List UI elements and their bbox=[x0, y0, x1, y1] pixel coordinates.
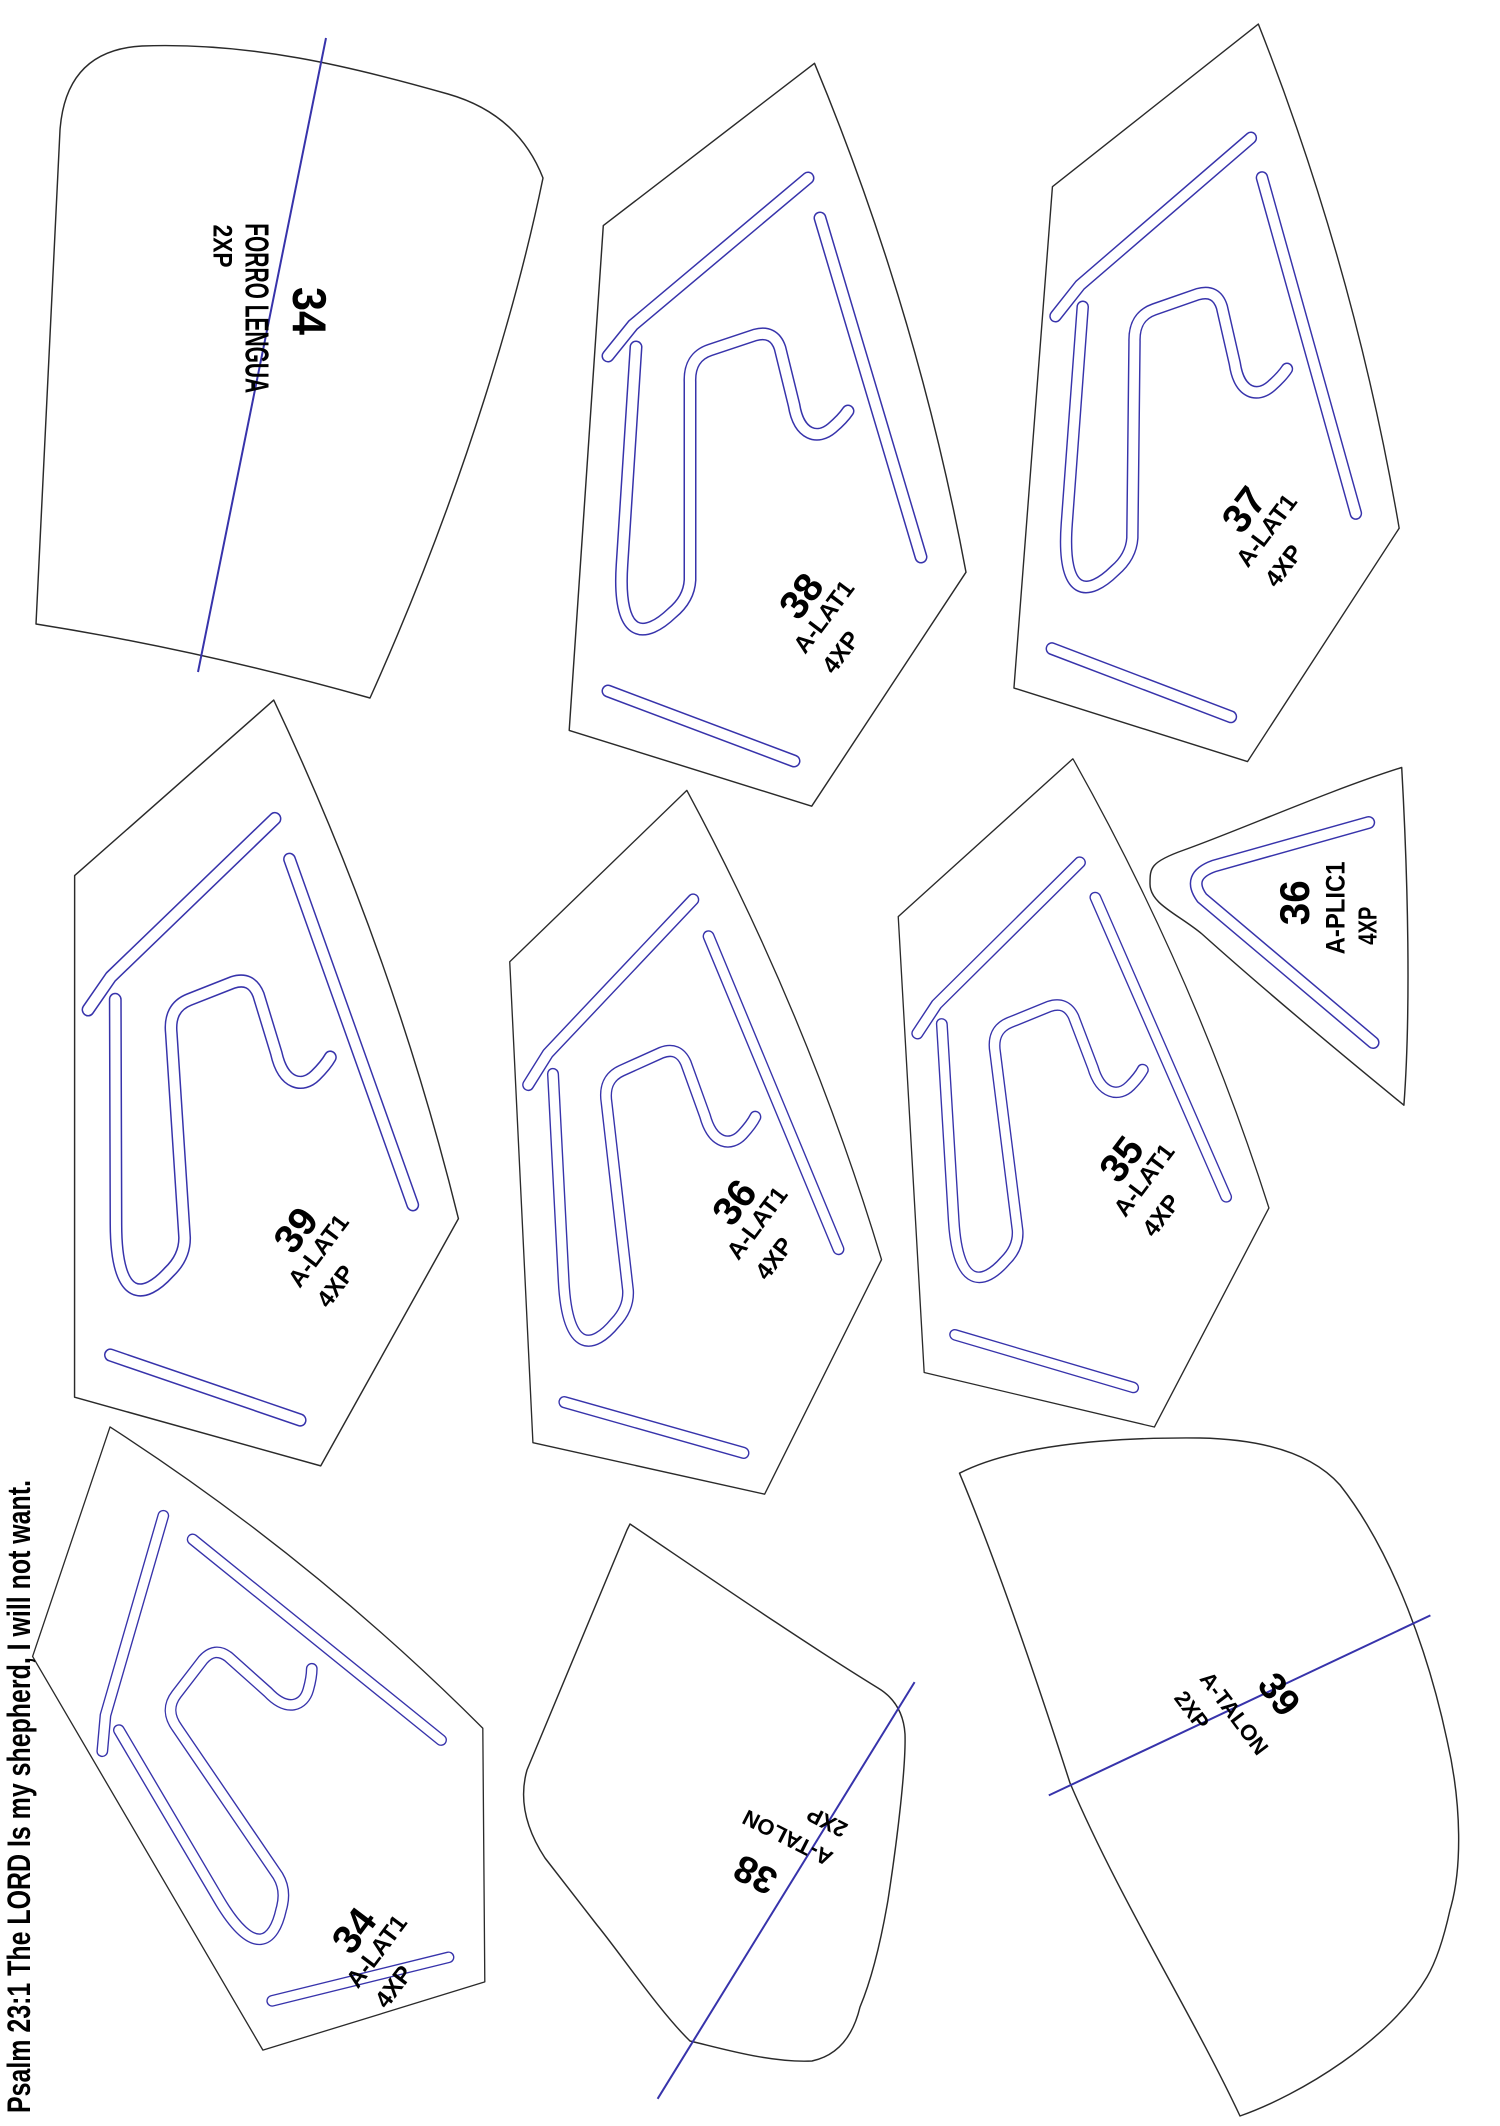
svg-text:36: 36 bbox=[1271, 880, 1318, 925]
svg-text:34: 34 bbox=[283, 287, 336, 335]
svg-text:FORRO LENGUA: FORRO LENGUA bbox=[239, 223, 276, 393]
svg-text:4XP: 4XP bbox=[1352, 907, 1382, 945]
svg-text:Psalm 23:1 The LORD Is my shep: Psalm 23:1 The LORD Is my shepherd, I wi… bbox=[1, 1480, 37, 2113]
svg-text:2XP: 2XP bbox=[208, 225, 238, 268]
svg-text:A-PLIC1: A-PLIC1 bbox=[1321, 861, 1351, 954]
